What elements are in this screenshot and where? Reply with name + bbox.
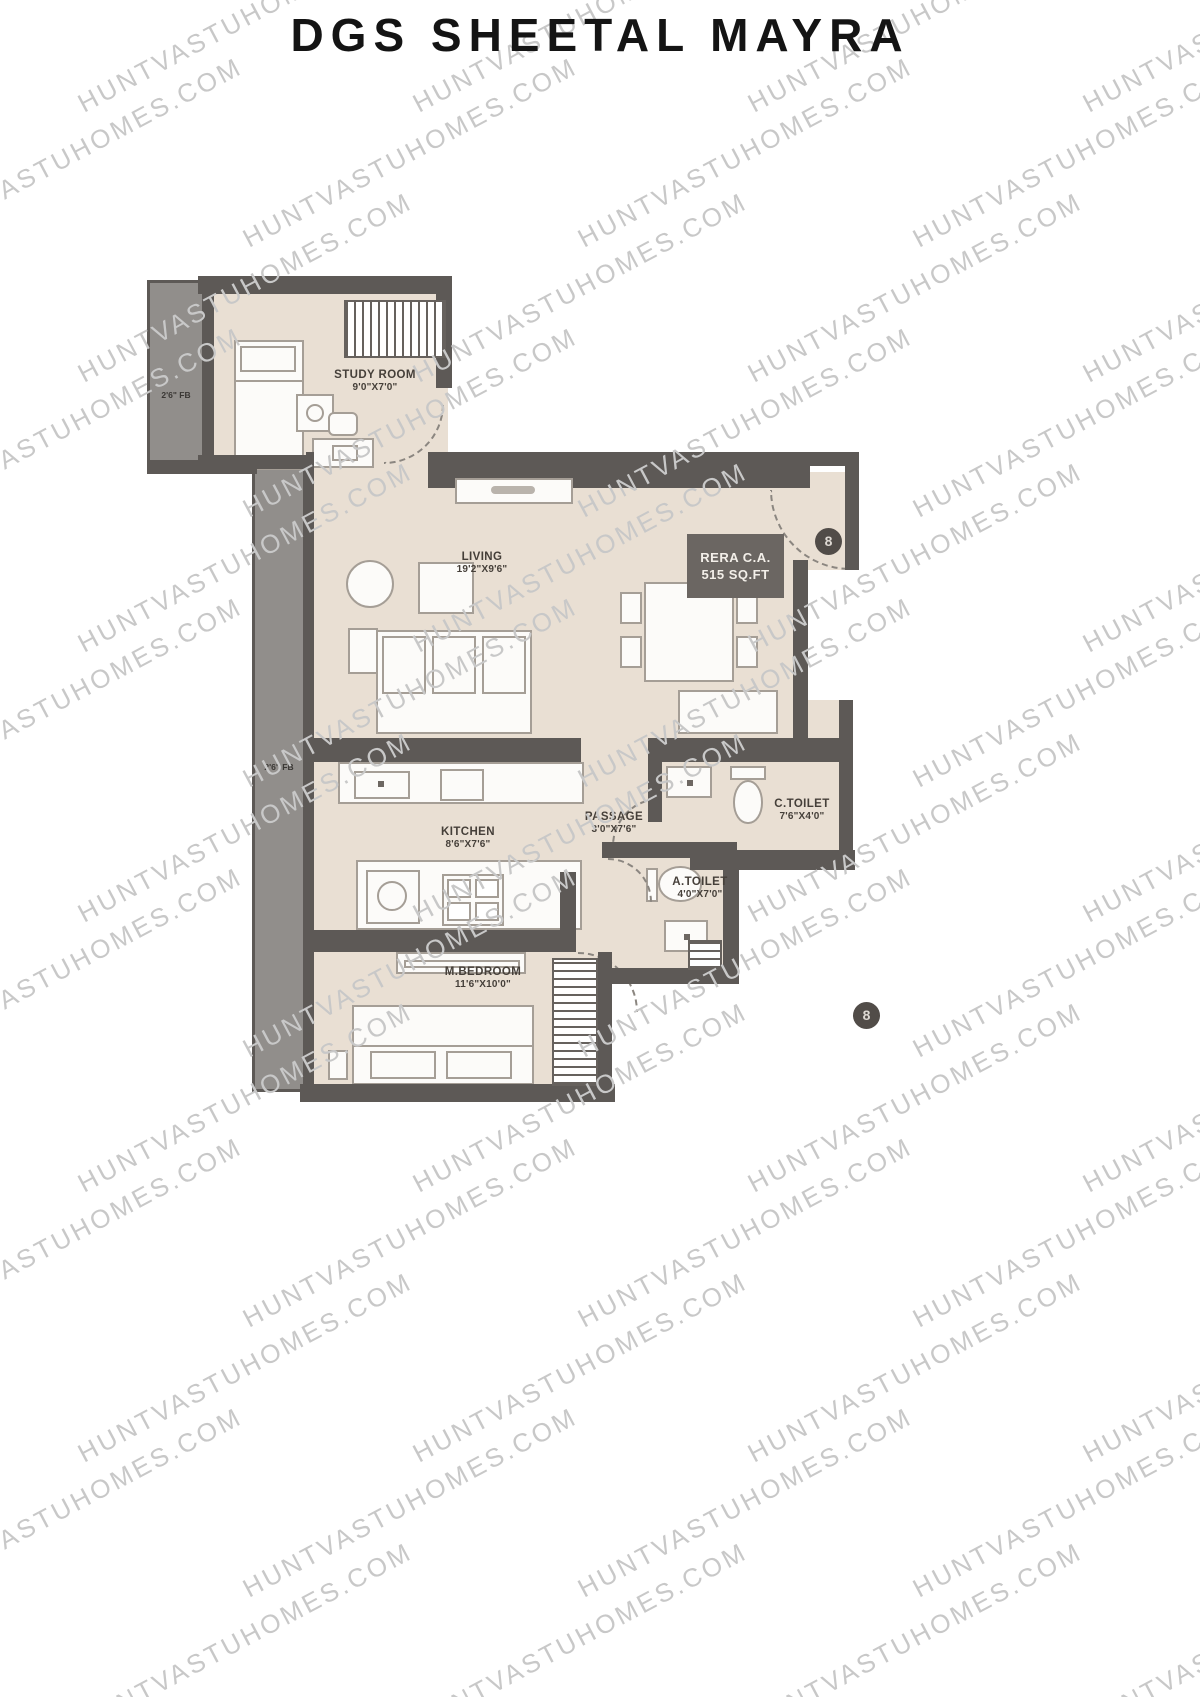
watermark-text: HUNTVASTUHOMES.COM (743, 1536, 1088, 1697)
floor-plan-page: DGS SHEETAL MAYRA 2'6" FB 2'6" FB (0, 0, 1200, 1697)
watermark-text: HUNTVASTUHOMES.COM (408, 1536, 753, 1697)
watermark-text: HUNTVASTUHOMES.COM (573, 321, 918, 524)
watermark-text: HUNTVASTUHOMES.COM (573, 861, 918, 1064)
watermark-text: HUNTVASTUHOMES.COM (73, 1536, 418, 1697)
watermark-text: HUNTVASTUHOMES.COM (0, 1131, 248, 1334)
watermark-text: HUNTVASTUHOMES.COM (73, 996, 418, 1199)
watermark-text: HUNTVASTUHOMES.COM (1078, 996, 1200, 1199)
watermark-text: HUNTVASTUHOMES.COM (0, 51, 248, 254)
watermark-layer: HUNTVASTUHOMES.COMHUNTVASTUHOMES.COMHUNT… (0, 0, 1200, 1697)
watermark-text: HUNTVASTUHOMES.COM (0, 321, 248, 524)
watermark-text: HUNTVASTUHOMES.COM (0, 1401, 248, 1604)
watermark-text: HUNTVASTUHOMES.COM (743, 726, 1088, 929)
watermark-text: HUNTVASTUHOMES.COM (743, 186, 1088, 389)
watermark-text: HUNTVASTUHOMES.COM (743, 996, 1088, 1199)
page-title: DGS SHEETAL MAYRA (0, 8, 1200, 62)
watermark-text: HUNTVASTUHOMES.COM (1078, 456, 1200, 659)
watermark-text: HUNTVASTUHOMES.COM (73, 1266, 418, 1469)
watermark-text: HUNTVASTUHOMES.COM (238, 51, 583, 254)
watermark-text: HUNTVASTUHOMES.COM (908, 591, 1200, 794)
watermark-text: HUNTVASTUHOMES.COM (408, 996, 753, 1199)
watermark-text: HUNTVASTUHOMES.COM (408, 186, 753, 389)
watermark-text: HUNTVASTUHOMES.COM (73, 726, 418, 929)
watermark-text: HUNTVASTUHOMES.COM (408, 456, 753, 659)
watermark-text: HUNTVASTUHOMES.COM (573, 1131, 918, 1334)
watermark-text: HUNTVASTUHOMES.COM (908, 51, 1200, 254)
watermark-text: HUNTVASTUHOMES.COM (238, 321, 583, 524)
watermark-text: HUNTVASTUHOMES.COM (73, 456, 418, 659)
watermark-text: HUNTVASTUHOMES.COM (1078, 1536, 1200, 1697)
watermark-text: HUNTVASTUHOMES.COM (0, 591, 248, 794)
watermark-text: HUNTVASTUHOMES.COM (238, 1401, 583, 1604)
watermark-text: HUNTVASTUHOMES.COM (743, 1266, 1088, 1469)
watermark-text: HUNTVASTUHOMES.COM (408, 1266, 753, 1469)
watermark-text: HUNTVASTUHOMES.COM (238, 591, 583, 794)
watermark-text: HUNTVASTUHOMES.COM (1078, 1266, 1200, 1469)
watermark-text: HUNTVASTUHOMES.COM (1078, 186, 1200, 389)
watermark-text: HUNTVASTUHOMES.COM (908, 321, 1200, 524)
watermark-text: HUNTVASTUHOMES.COM (573, 51, 918, 254)
watermark-text: HUNTVASTUHOMES.COM (908, 861, 1200, 1064)
watermark-text: HUNTVASTUHOMES.COM (908, 1401, 1200, 1604)
watermark-text: HUNTVASTUHOMES.COM (238, 1131, 583, 1334)
watermark-text: HUNTVASTUHOMES.COM (0, 861, 248, 1064)
watermark-text: HUNTVASTUHOMES.COM (573, 1401, 918, 1604)
watermark-text: HUNTVASTUHOMES.COM (238, 861, 583, 1064)
watermark-text: HUNTVASTUHOMES.COM (908, 1131, 1200, 1334)
watermark-text: HUNTVASTUHOMES.COM (573, 591, 918, 794)
watermark-text: HUNTVASTUHOMES.COM (1078, 726, 1200, 929)
watermark-text: HUNTVASTUHOMES.COM (73, 186, 418, 389)
watermark-text: HUNTVASTUHOMES.COM (743, 456, 1088, 659)
watermark-text: HUNTVASTUHOMES.COM (408, 726, 753, 929)
